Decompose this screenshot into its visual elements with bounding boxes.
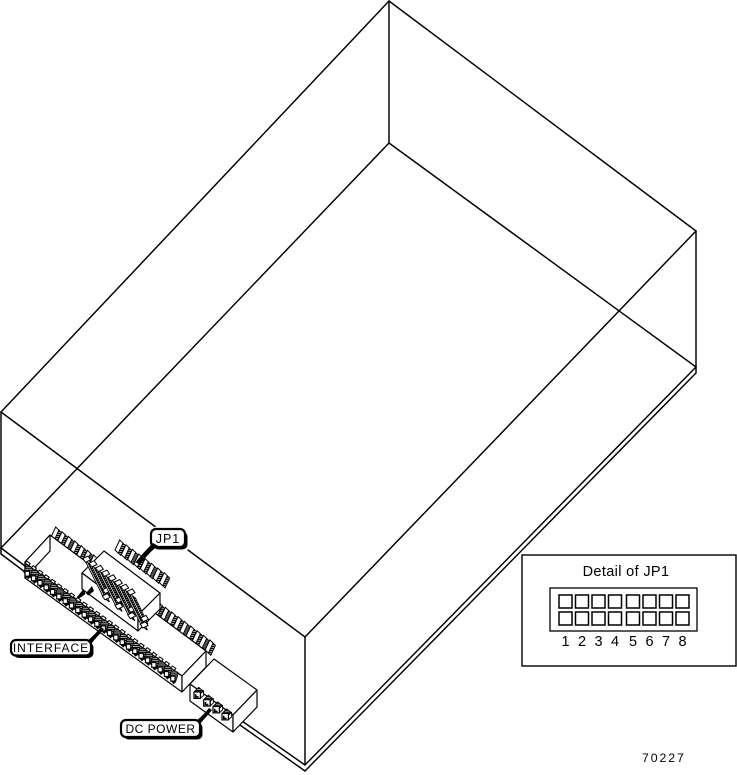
svg-text:7: 7 [662, 634, 670, 650]
svg-text:DC POWER: DC POWER [126, 722, 196, 736]
svg-text:4: 4 [611, 634, 619, 650]
svg-text:1: 1 [561, 634, 569, 650]
svg-text:3: 3 [594, 634, 602, 650]
svg-text:INTERFACE: INTERFACE [13, 641, 89, 655]
svg-text:8: 8 [678, 634, 686, 650]
svg-text:Detail of JP1: Detail of JP1 [583, 564, 670, 580]
svg-text:2: 2 [578, 634, 586, 650]
svg-text:70227: 70227 [642, 751, 686, 765]
svg-text:JP1: JP1 [156, 532, 181, 546]
svg-text:6: 6 [645, 634, 653, 650]
svg-text:5: 5 [629, 634, 637, 650]
